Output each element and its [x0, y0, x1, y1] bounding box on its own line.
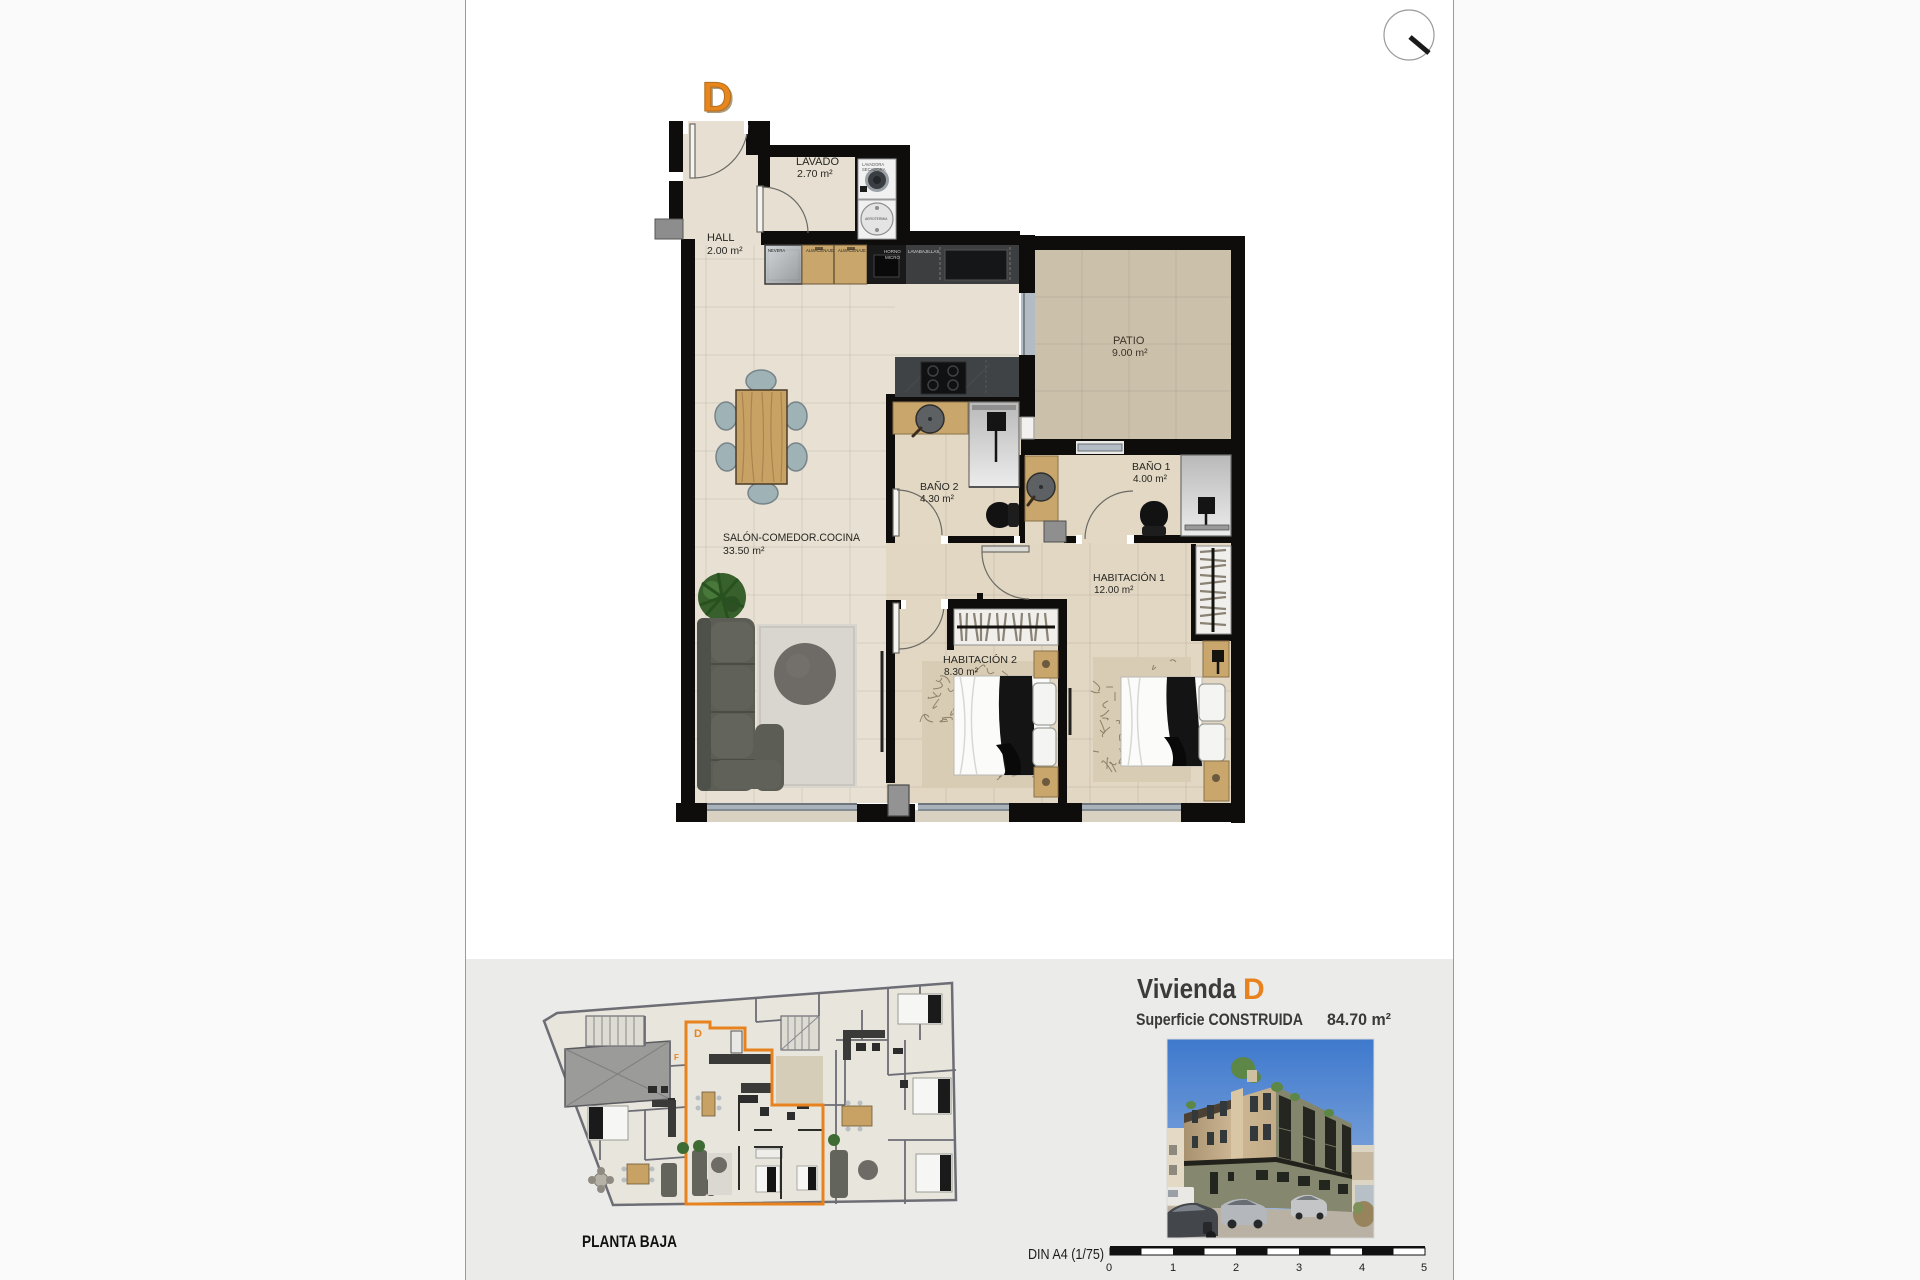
svg-text:3: 3 — [1296, 1262, 1302, 1274]
svg-text:D: D — [702, 73, 732, 120]
svg-text:1: 1 — [1170, 1262, 1176, 1274]
svg-text:HORNO: HORNO — [884, 249, 901, 254]
svg-text:84.70 m²: 84.70 m² — [1327, 1010, 1391, 1029]
svg-text:MICRO: MICRO — [885, 255, 900, 260]
svg-text:0: 0 — [1106, 1262, 1112, 1274]
svg-text:D: D — [694, 1028, 702, 1040]
svg-text:SALÓN-COMEDOR.COCINA: SALÓN-COMEDOR.COCINA — [723, 531, 861, 544]
svg-text:Superficie CONSTRUIDA: Superficie CONSTRUIDA — [1136, 1010, 1303, 1029]
svg-text:F: F — [674, 1053, 679, 1062]
svg-text:SECADORA: SECADORA — [862, 167, 886, 172]
svg-text:2.70 m²: 2.70 m² — [797, 168, 833, 180]
svg-text:Vivienda: Vivienda — [1137, 973, 1236, 1004]
svg-text:ALMACENAJE: ALMACENAJE — [806, 248, 834, 253]
svg-text:5: 5 — [1421, 1262, 1427, 1274]
svg-text:NEVERA: NEVERA — [768, 248, 785, 253]
svg-text:ALMACENAJE: ALMACENAJE — [838, 248, 866, 253]
svg-text:8.30 m²: 8.30 m² — [944, 667, 979, 678]
svg-text:PATIO: PATIO — [1113, 335, 1145, 347]
svg-text:4.00 m²: 4.00 m² — [1133, 474, 1168, 485]
svg-text:4: 4 — [1359, 1262, 1365, 1274]
svg-text:HALL: HALL — [707, 232, 735, 244]
svg-text:33.50 m²: 33.50 m² — [723, 545, 765, 557]
svg-text:2: 2 — [1233, 1262, 1239, 1274]
svg-text:4.30 m²: 4.30 m² — [920, 494, 955, 505]
svg-text:BAÑO 2: BAÑO 2 — [920, 480, 959, 493]
svg-text:DIN A4 (1/75): DIN A4 (1/75) — [1028, 1246, 1104, 1263]
svg-text:HABITACIÓN 2: HABITACIÓN 2 — [943, 653, 1017, 666]
svg-text:AEROTERMIA: AEROTERMIA — [865, 217, 888, 221]
svg-text:LAVABAJILLAS: LAVABAJILLAS — [908, 249, 939, 254]
svg-text:PLANTA BAJA: PLANTA BAJA — [582, 1232, 677, 1251]
svg-text:BAÑO 1: BAÑO 1 — [1132, 460, 1171, 473]
svg-text:9.00 m²: 9.00 m² — [1112, 347, 1148, 359]
svg-text:D: D — [1243, 973, 1265, 1006]
svg-text:LAVADO: LAVADO — [796, 156, 839, 168]
svg-text:12.00 m²: 12.00 m² — [1094, 585, 1134, 596]
svg-text:2.00 m²: 2.00 m² — [707, 245, 743, 257]
svg-text:HABITACIÓN 1: HABITACIÓN 1 — [1093, 571, 1165, 584]
